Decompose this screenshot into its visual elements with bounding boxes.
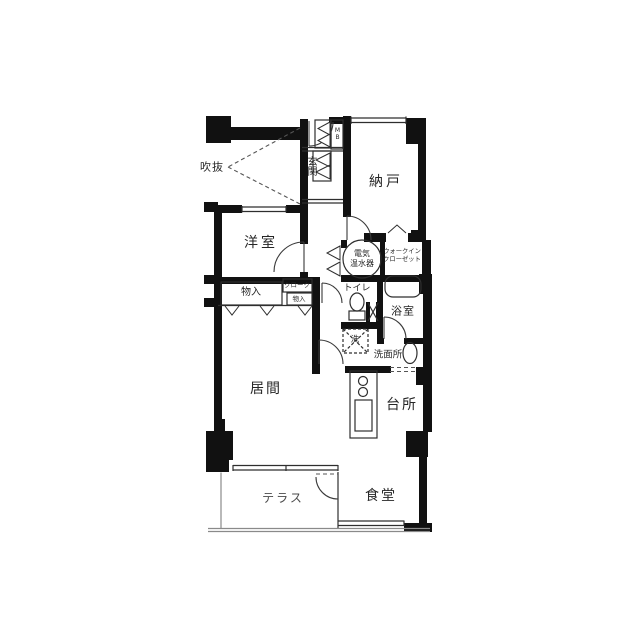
room-label-washroom: 洗面所 (374, 350, 403, 360)
terrace-door-arc (316, 477, 338, 499)
room-label-entrance: 玄関 (305, 156, 315, 176)
bathroom-door-arc (384, 317, 406, 339)
western-room-door-arc (274, 242, 304, 272)
column (406, 118, 426, 144)
label-meter-box: MB (334, 127, 340, 141)
label-walkin-line2: クローゼット (383, 257, 421, 263)
kitchen-pass-dash (390, 368, 416, 372)
heater-closet-door-mark (327, 246, 340, 276)
toilet-icon (349, 293, 365, 320)
terrace-bottom-edge (208, 529, 430, 532)
room-label-western-room: 洋室 (244, 236, 278, 250)
label-water-heater-line2: 温水器 (350, 260, 374, 268)
label-cloak: クローク (284, 282, 310, 289)
room-label-dining: 食堂 (365, 489, 397, 503)
washbasin-icon (403, 343, 417, 364)
closet-folding-door-marks (225, 306, 312, 315)
hall-door-arc (319, 340, 343, 364)
pipe-space-icon (366, 302, 380, 322)
walkin-folding-door-mark (388, 225, 406, 233)
room-label-void: 吹抜 (200, 162, 224, 173)
room-label-living: 居間 (250, 382, 282, 396)
floorplan: 吹抜 玄関 MB 納戸 洋室 電気 温水器 ウォークイン クローゼット クローク… (0, 0, 640, 640)
column (406, 431, 428, 457)
thin-partitions (218, 120, 343, 529)
label-water-heater-line1: 電気 (354, 250, 370, 258)
column (206, 431, 233, 460)
corner-wall (404, 523, 432, 532)
toilet-door-arc (322, 283, 342, 303)
room-label-bathroom: 浴室 (391, 306, 415, 317)
kitchen-counter-icon (350, 371, 377, 438)
column (206, 116, 231, 143)
room-label-kitchen: 台所 (386, 398, 418, 412)
shoe-cabinet-door-mark (316, 153, 330, 179)
label-closet-small: 物入 (293, 296, 306, 303)
room-label-toilet: トイレ (343, 285, 370, 294)
label-walkin-line1: ウォークイン (383, 249, 421, 255)
window-western-room (242, 206, 286, 213)
window-living-terrace (233, 465, 338, 471)
room-label-storage-room: 納戸 (369, 175, 403, 189)
window-storage-room (351, 117, 406, 125)
column-stub (206, 459, 229, 472)
room-label-terrace: テラス (262, 492, 304, 504)
label-washer: 洗 (351, 336, 360, 345)
window-dining (338, 521, 404, 527)
floorplan-drawing (0, 0, 640, 640)
entrance-step (302, 200, 343, 204)
label-closet: 物入 (241, 288, 261, 298)
